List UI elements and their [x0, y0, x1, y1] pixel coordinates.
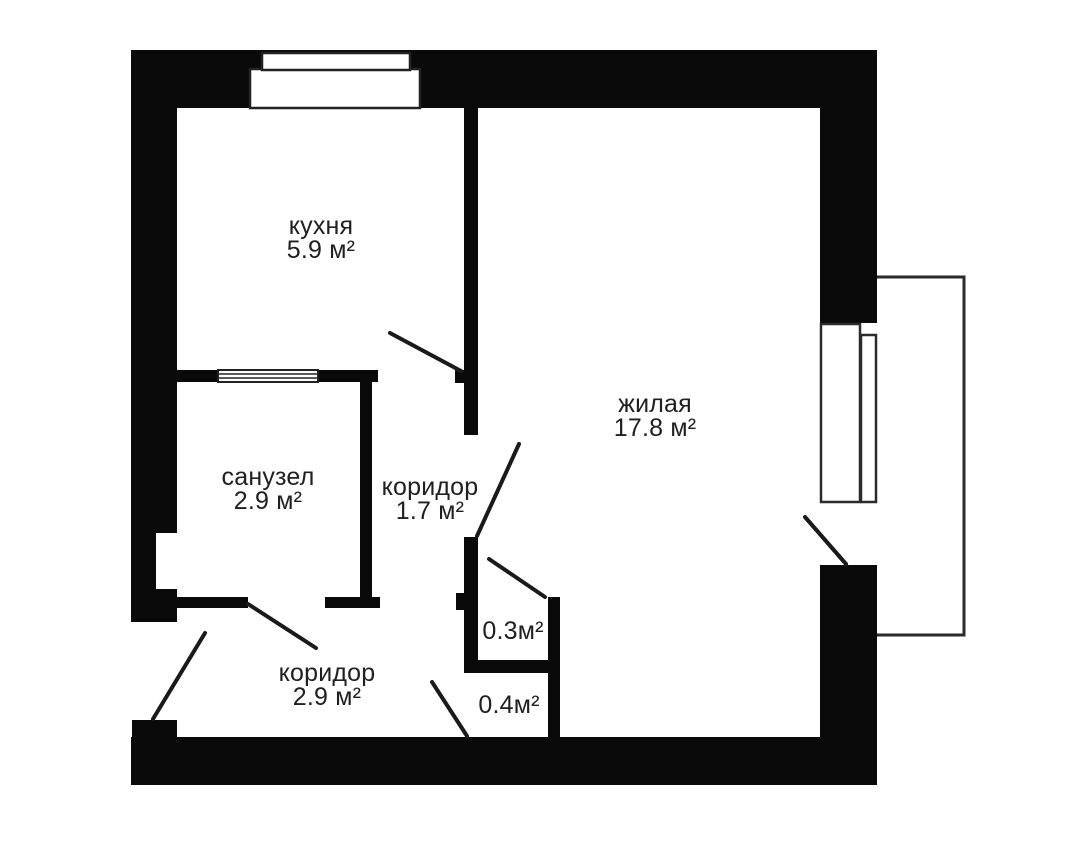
entrance-door-swing: [153, 633, 205, 719]
bathroom-window: [218, 370, 318, 382]
living-room-window: [821, 324, 876, 502]
living-room-area: 17.8 м²: [614, 416, 697, 440]
closet-03-door-swing: [489, 559, 545, 597]
wall-top: [131, 50, 877, 108]
label-closet-03: 0.3м²: [482, 619, 543, 643]
wall-closet-horizontal: [464, 660, 560, 673]
wall-right-upper: [820, 50, 877, 323]
wall-bathroom-bottom: [177, 597, 248, 608]
closet-04-door-swing: [432, 682, 467, 736]
kitchen-name: кухня: [287, 214, 355, 238]
bathroom-name: санузел: [222, 465, 315, 489]
kitchen-window: [250, 53, 420, 108]
label-living-room: жилая 17.8 м²: [614, 392, 697, 440]
wall-closet-right: [548, 597, 560, 737]
corridor-main-area: 2.9 м²: [279, 685, 376, 709]
closet-03-area: 0.3м²: [482, 619, 543, 643]
bathroom-door-swing: [248, 604, 316, 648]
wall-left-upper: [131, 50, 177, 533]
living-room-name: жилая: [614, 392, 697, 416]
wall-bathroom-bottom-cap: [325, 597, 380, 608]
wall-left-niche-strip: [131, 533, 156, 589]
wall-bathroom-right: [360, 382, 372, 597]
corridor-small-area: 1.7 м²: [382, 499, 479, 523]
kitchen-door-swing: [390, 333, 461, 371]
floor-plan: кухня 5.9 м² санузел 2.9 м² коридор 1.7 …: [0, 0, 1080, 849]
wall-left-entrance-stub: [132, 720, 177, 737]
living-room-door-swing: [477, 444, 519, 536]
closet-04-area: 0.4м²: [478, 693, 539, 717]
wall-bottom: [131, 737, 877, 785]
label-kitchen: кухня 5.9 м²: [287, 214, 355, 262]
label-corridor-main: коридор 2.9 м²: [279, 661, 376, 709]
wall-living-divider-upper: [464, 108, 478, 435]
balcony-outline: [877, 277, 964, 635]
corridor-small-name: коридор: [382, 475, 479, 499]
kitchen-area: 5.9 м²: [287, 238, 355, 262]
balcony-door-swing: [805, 517, 846, 564]
floor-plan-drawing: [0, 0, 1080, 849]
wall-living-divider-lower: [464, 537, 478, 673]
label-bathroom: санузел 2.9 м²: [222, 465, 315, 513]
corridor-main-name: коридор: [279, 661, 376, 685]
label-corridor-small: коридор 1.7 м²: [382, 475, 479, 523]
wall-divider-stub: [456, 593, 464, 610]
bathroom-area: 2.9 м²: [222, 489, 315, 513]
wall-left-lower: [131, 589, 177, 622]
label-closet-04: 0.4м²: [478, 693, 539, 717]
